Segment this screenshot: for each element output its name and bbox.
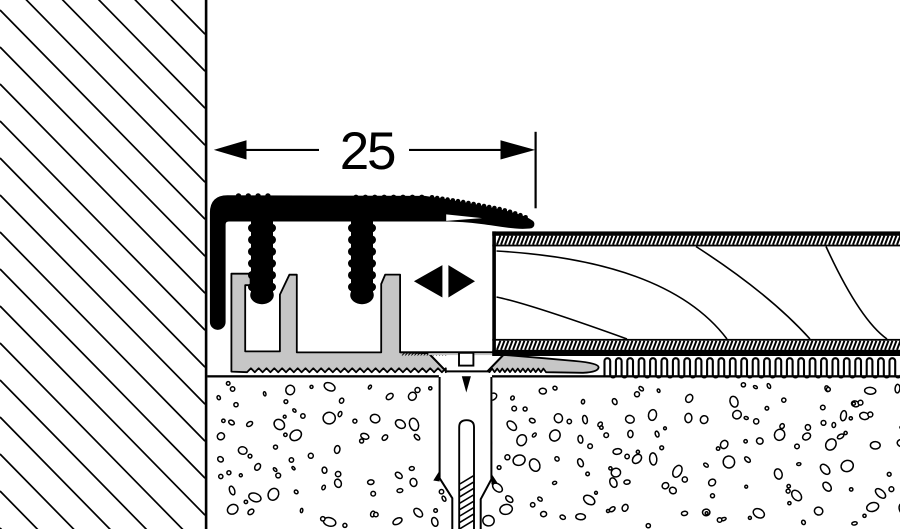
svg-text:25: 25 <box>340 122 395 181</box>
